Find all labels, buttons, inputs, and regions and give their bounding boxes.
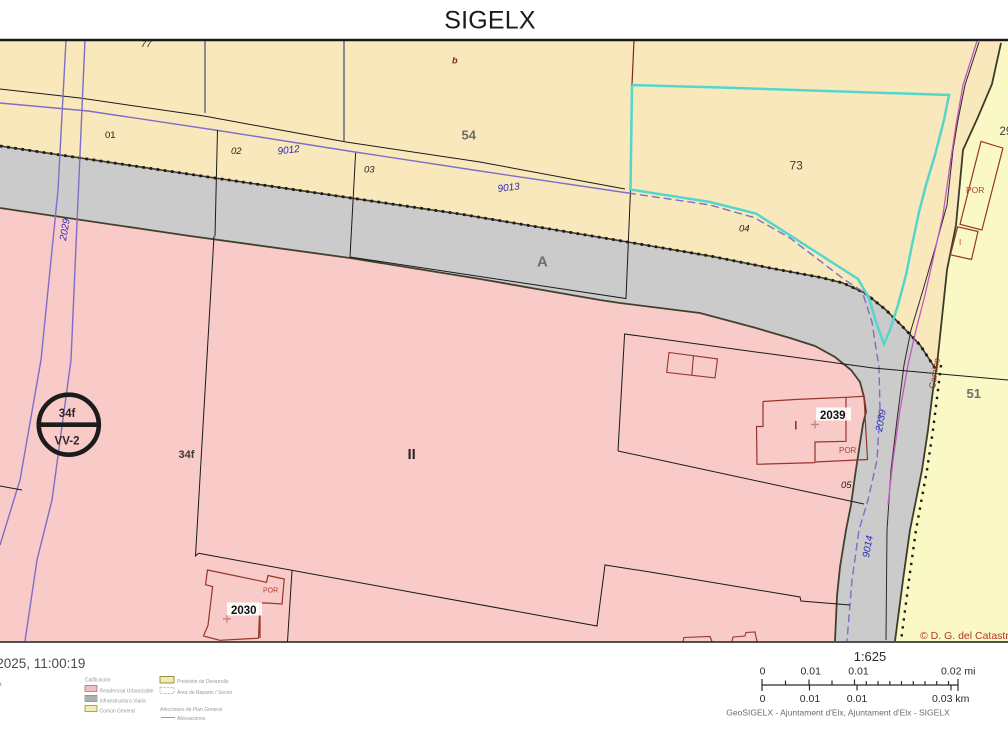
svg-text:POR: POR <box>839 446 857 455</box>
svg-text:VV-2: VV-2 <box>55 436 80 448</box>
svg-text:0.01: 0.01 <box>848 666 869 678</box>
svg-text:29: 29 <box>1000 126 1008 138</box>
svg-text:Residencial Urbanizable: Residencial Urbanizable <box>100 689 154 695</box>
svg-text:Común General: Común General <box>100 709 135 715</box>
svg-text:Calificación: Calificación <box>85 678 111 684</box>
svg-text:54: 54 <box>462 128 477 143</box>
svg-text:02: 02 <box>231 146 242 157</box>
svg-text:Afecciones de Plan General: Afecciones de Plan General <box>160 707 222 713</box>
svg-text:0.02 mi: 0.02 mi <box>941 666 975 678</box>
svg-text:01: 01 <box>105 130 116 141</box>
svg-text:Área de Reparto / Sector: Área de Reparto / Sector <box>177 689 233 696</box>
svg-text:7/2025, 11:00:19: 7/2025, 11:00:19 <box>0 656 85 671</box>
svg-text:04: 04 <box>739 224 750 235</box>
svg-text:© D. G. del Catastro: © D. G. del Catastro <box>920 630 1008 642</box>
svg-text:POR: POR <box>263 588 278 595</box>
svg-text:34f: 34f <box>179 449 195 461</box>
svg-text:2039: 2039 <box>820 410 846 422</box>
svg-text:A: A <box>537 254 548 271</box>
svg-text:0.01: 0.01 <box>800 693 821 705</box>
svg-text:POR: POR <box>966 185 984 195</box>
svg-text:0.01: 0.01 <box>800 666 821 678</box>
svg-text:GeoSIGELX - Ajuntament d'Elx,: GeoSIGELX - Ajuntament d'Elx, Ajuntament… <box>726 708 950 718</box>
svg-text:73: 73 <box>790 159 804 173</box>
svg-text:SIGELX: SIGELX <box>444 7 536 35</box>
svg-text:b: b <box>452 56 458 66</box>
svg-text:Infraestructura Viaria: Infraestructura Viaria <box>100 699 147 705</box>
svg-text:Alineaciones: Alineaciones <box>177 716 206 722</box>
svg-text:51: 51 <box>967 386 981 401</box>
svg-text:II: II <box>408 446 416 463</box>
svg-text:0.01: 0.01 <box>847 693 868 705</box>
svg-text:Previsión de Desarrollo: Previsión de Desarrollo <box>177 679 229 685</box>
svg-text:0: 0 <box>760 693 766 705</box>
svg-text:A: A <box>0 681 2 688</box>
svg-text:1:625: 1:625 <box>854 649 887 664</box>
svg-text:05: 05 <box>841 480 852 491</box>
svg-text:0.03 km: 0.03 km <box>932 693 970 705</box>
svg-text:I: I <box>959 238 961 247</box>
svg-text:2030: 2030 <box>231 605 257 617</box>
svg-text:03: 03 <box>364 165 375 176</box>
svg-text:34f: 34f <box>59 408 76 420</box>
svg-text:0: 0 <box>760 666 766 678</box>
